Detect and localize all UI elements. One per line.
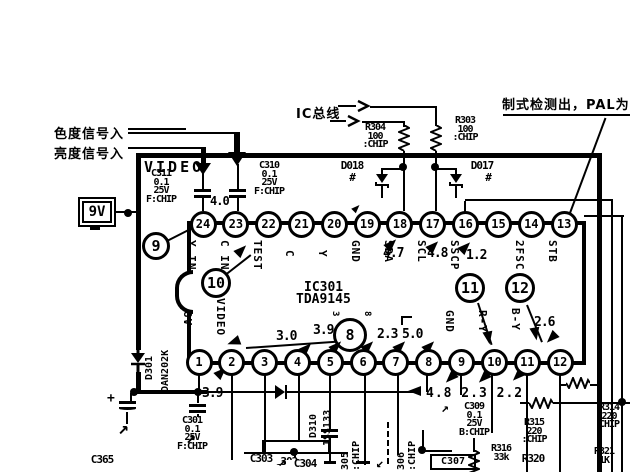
wire — [237, 198, 239, 211]
pin24-ac-value: 4.0 — [210, 194, 229, 208]
junction-dot — [130, 388, 138, 396]
pin-17: 17 — [419, 211, 446, 238]
zener-d017-symbol — [448, 168, 464, 198]
label-r316: R31633k — [484, 445, 518, 462]
junction-dot — [399, 163, 407, 171]
wire — [465, 199, 613, 201]
pin-6-alt-value: 3 — [330, 311, 340, 317]
pin-24-name: Y IN — [185, 240, 198, 271]
label-c304: C304 — [286, 460, 324, 469]
pin-6: 6 — [350, 349, 377, 376]
pin-14-name: 2FSC — [513, 240, 526, 271]
pin-7-alt-value: 8 — [362, 311, 372, 317]
wire — [202, 198, 204, 211]
resistor-r304-symbol — [398, 125, 410, 151]
pin-3: 3 — [251, 349, 278, 376]
wire — [621, 216, 623, 472]
label-d310-ref: D310 — [308, 414, 319, 438]
pin-17-name: SCL — [415, 240, 428, 263]
dashed-wire — [387, 422, 389, 464]
chroma-arrow-stem — [234, 132, 240, 153]
label-c306: 306 — [396, 452, 407, 470]
label-d017: D017 — [464, 162, 500, 171]
supply-9v-badge: 9V — [82, 201, 112, 223]
callout-12: 12 — [505, 273, 535, 303]
probe-arrow-icon — [408, 386, 421, 396]
label-d301-part: DAN202K — [160, 350, 171, 392]
pin-8: 8 — [415, 349, 442, 376]
pin-4-value: 3.0 — [276, 329, 296, 344]
wire — [197, 395, 199, 403]
label-c306-type: :CHIP — [407, 441, 418, 471]
wire — [424, 450, 452, 452]
wire — [364, 375, 366, 465]
pin-9: 9 — [448, 349, 475, 376]
wire — [298, 375, 300, 442]
pin-19: 19 — [354, 211, 381, 238]
pin-7-value: 2.3 — [377, 327, 397, 342]
label-r321: R3211K — [584, 448, 624, 465]
pin-16-name: SSCP — [448, 240, 461, 271]
label-d310-part: 1SS133 — [322, 410, 333, 446]
cap-c301-plate — [189, 404, 206, 407]
wire — [207, 391, 421, 393]
pin-1-name: 8V — [181, 311, 194, 326]
pin-2-name: VIDEO — [214, 298, 227, 336]
wire — [128, 147, 206, 149]
pin-7: 7 — [382, 349, 409, 376]
pin-22: 22 — [255, 211, 282, 238]
ic-left-edge-bump — [175, 270, 193, 314]
pin-11-name: B-Y — [509, 308, 522, 331]
ground-icon: ↗ — [186, 430, 196, 446]
hash-d017: # — [482, 174, 494, 183]
pin-13: 13 — [551, 211, 578, 238]
bottom-row-values: 4.8 2.3 2.2 — [426, 386, 523, 401]
ic-bus-label: IC总线 — [296, 103, 340, 122]
supply-9v-tab — [90, 226, 100, 230]
label-r314: R314220 CHIP — [588, 404, 630, 430]
label-r303: R303100 :CHIP — [442, 117, 488, 143]
pin-16: 16 — [452, 211, 479, 238]
label-c305: 305 — [340, 452, 351, 470]
wire — [262, 440, 330, 442]
pin-4: 4 — [284, 349, 311, 376]
wire — [138, 153, 602, 158]
pin1-value: 3.9 — [202, 386, 222, 401]
pin-18: 18 — [386, 211, 413, 238]
label-r315: R315220 :CHIP — [512, 419, 556, 445]
label-r320: R320 — [516, 455, 550, 464]
label-c305-type: :CHIP — [351, 441, 362, 471]
callout-10: 10 — [201, 268, 231, 298]
junction-dot — [431, 163, 439, 171]
wire — [128, 132, 240, 134]
pin-10: 10 — [481, 349, 508, 376]
luma-input-arrow-icon — [195, 163, 211, 175]
wire — [231, 375, 233, 460]
pin-23: 23 — [222, 211, 249, 238]
cap-c365-plate — [119, 407, 136, 410]
label-d018: D018 — [334, 162, 370, 171]
ground-icon: ↗ — [278, 456, 286, 469]
pin-19-name: GND — [349, 240, 362, 263]
pin-21: 21 — [288, 211, 315, 238]
pin-23-name: C IN — [218, 240, 231, 271]
pin-22-name: TEST — [251, 240, 264, 271]
pin-14: 14 — [518, 211, 545, 238]
wire — [559, 386, 561, 472]
luma-input-label: 亮度信号入 — [54, 143, 124, 162]
ground-icon: ↗ — [118, 420, 129, 438]
pin-15: 15 — [485, 211, 512, 238]
pin-13-name: STB — [546, 240, 559, 263]
junction-dot — [124, 209, 132, 217]
pin-5: 5 — [317, 349, 344, 376]
pin-8-value: 5.0 — [402, 327, 422, 342]
wire — [370, 106, 437, 108]
resistor-pin12-symbol — [566, 377, 590, 389]
junction-dot — [418, 446, 426, 454]
zener-d018-symbol — [374, 168, 390, 198]
waveform-bracket — [401, 316, 412, 325]
probe-arrow-icon — [482, 331, 494, 346]
pin-20-name: Y — [316, 250, 329, 258]
cap-c301-plate — [189, 410, 206, 413]
wire — [435, 108, 437, 126]
schematic-page: 色度信号入 亮度信号入 IC总线 制式检测出，PAL为 VIDEO 9V IC3… — [0, 0, 630, 472]
resistor-r303-symbol — [430, 125, 442, 151]
pin-24: 24 — [190, 211, 217, 238]
label-c303: C303 — [241, 455, 281, 464]
pin-1: 1 — [186, 349, 213, 376]
ground-icon: ↗ — [441, 402, 449, 415]
ground-icon: ↙ — [376, 457, 384, 470]
pin-9-name: GND — [443, 310, 456, 333]
plus-polarity-mark: + — [107, 391, 115, 406]
label-c311: C3110.1 25VF:CHIP — [136, 170, 186, 204]
wire — [403, 168, 405, 211]
callout-11: 11 — [455, 273, 485, 303]
ic-part-number: TDA9145 — [296, 292, 351, 307]
pin-10-name: R-Y — [476, 310, 489, 333]
standard-detect-underline — [503, 114, 630, 116]
probe-arrow-icon — [529, 327, 541, 342]
wire — [435, 168, 437, 211]
diode-d310-symbol — [271, 383, 293, 401]
resistor-r315-symbol — [529, 397, 553, 409]
standard-detect-label: 制式检测出，PAL为 — [502, 94, 630, 113]
chroma-input-label: 色度信号入 — [54, 123, 124, 142]
pin-2: 2 — [218, 349, 245, 376]
pin-12: 12 — [547, 349, 574, 376]
wire — [237, 164, 239, 190]
wire — [397, 375, 399, 455]
pin-21-name: C — [283, 250, 296, 258]
junction-dot — [194, 388, 202, 396]
resistor-r316-symbol — [468, 450, 480, 472]
label-c310: C3100.1 25VF:CHIP — [246, 162, 292, 196]
cap-c365-plate — [119, 401, 136, 404]
pin-11: 11 — [514, 349, 541, 376]
pin-5-value: 3.9 — [313, 323, 333, 338]
label-c309: C3090.1 25VB:CHIP — [448, 403, 500, 437]
label-c365: C365 — [82, 456, 122, 465]
bus-arrow-icon — [356, 99, 371, 114]
wire — [338, 105, 356, 107]
wire — [584, 215, 624, 217]
callout-9: 9 — [142, 232, 170, 260]
chroma-input-arrow-icon — [228, 152, 246, 166]
hash-d018: # — [346, 174, 358, 183]
wire — [128, 128, 186, 130]
bus-arrow-icon — [346, 114, 361, 129]
wire — [611, 200, 613, 472]
pin-20: 20 — [321, 211, 348, 238]
label-d301-ref: D301 — [144, 356, 155, 380]
